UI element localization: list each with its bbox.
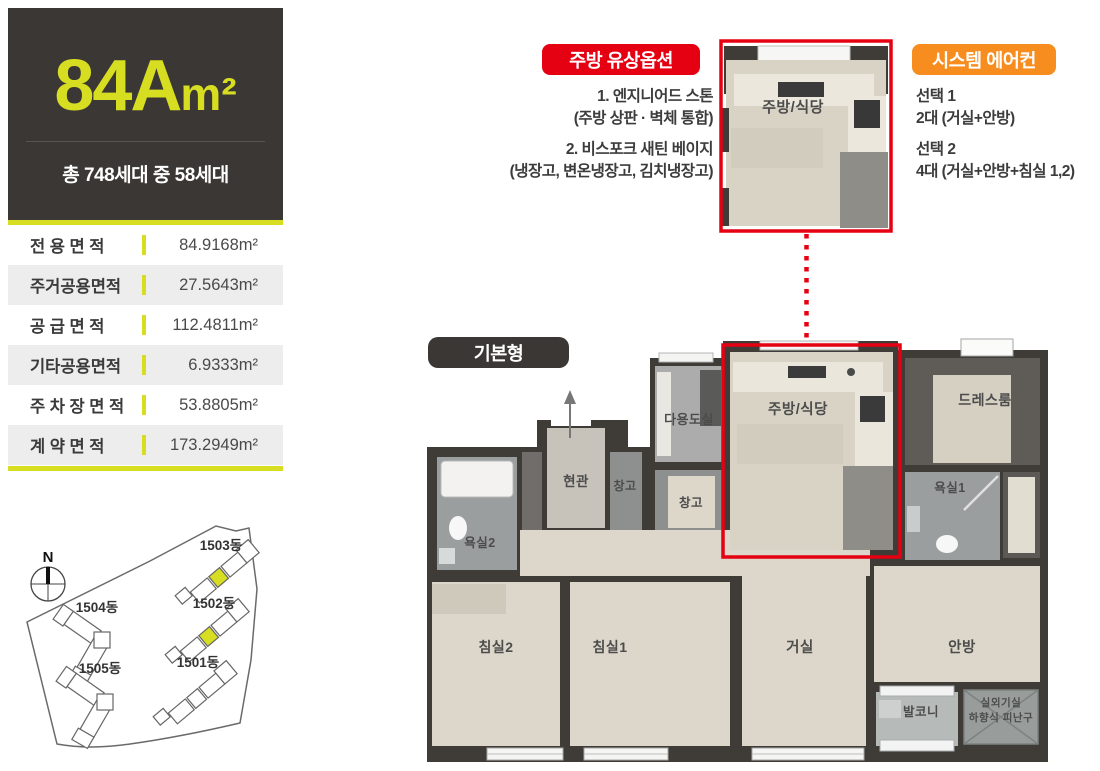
area-row-value: 112.4811m² <box>152 316 283 335</box>
label-entrance: 현관 <box>563 473 589 489</box>
room-master <box>874 566 1040 682</box>
site-boundary <box>27 526 257 747</box>
row-divider <box>142 315 146 335</box>
bathtub <box>441 461 513 497</box>
label-storage-b: 창고 <box>679 495 703 510</box>
row-divider <box>142 435 146 455</box>
inset-connector <box>796 230 818 348</box>
label-escape-hatch: 하향식 피난구 <box>969 711 1033 724</box>
inset-room-label: 주방/식당 <box>762 98 824 116</box>
island <box>737 424 843 464</box>
header-divider <box>26 141 265 142</box>
row-divider <box>142 395 146 415</box>
aircon-option-line: 선택 1 <box>916 86 1075 108</box>
area-row-label: 기타공용면적 <box>8 353 142 377</box>
washer <box>879 700 901 718</box>
inset-window <box>758 46 850 61</box>
wardrobe <box>432 584 506 614</box>
building-label: 1502동 <box>193 596 235 611</box>
area-row-label: 계 약 면 적 <box>8 433 142 457</box>
area-row: 주거공용면적 27.5643m² <box>8 265 283 305</box>
pantry <box>843 466 893 550</box>
kitchen-inset-plan: 주방/식당 <box>715 35 895 237</box>
kitchen-option-badge: 주방 유상옵션 <box>542 44 700 75</box>
area-table: 전 용 면 적 84.9168m² 주거공용면적 27.5643m² 공 급 면… <box>8 225 283 465</box>
label-living: 거실 <box>786 639 814 656</box>
kitchen-option-line: 1. 엔지니어드 스톤 <box>420 86 713 108</box>
closet <box>1003 472 1040 558</box>
row-divider <box>142 275 146 295</box>
balcony-window <box>880 740 954 751</box>
label-bath2: 욕실2 <box>464 535 495 550</box>
label-dress: 드레스룸 <box>958 392 1012 408</box>
building-label: 1505동 <box>79 661 121 676</box>
room-kitchen <box>730 352 893 550</box>
household-info: 총 748세대 중 58세대 <box>8 160 283 187</box>
room-bath2 <box>437 457 517 570</box>
aircon-option-text: 선택 1 2대 (거실+안방) 선택 2 4대 (거실+안방+침실 1,2) <box>916 86 1075 183</box>
area-row-label: 주거공용면적 <box>8 273 142 297</box>
area-row-value: 27.5643m² <box>152 276 283 295</box>
north-label: N <box>43 549 54 566</box>
area-row-value: 173.2949m² <box>152 436 283 455</box>
area-row-value: 53.8805m² <box>152 396 283 415</box>
unit-type-code: 84A <box>54 46 180 126</box>
label-storage-a: 창고 <box>613 478 636 493</box>
brochure-page: 84Am² 총 748세대 중 58세대 전 용 면 적 84.9168m² 주… <box>0 0 1100 771</box>
area-row-value: 84.9168m² <box>152 236 283 255</box>
room-bed2 <box>432 582 560 746</box>
area-row: 주 차 장 면 적 53.8805m² <box>8 385 283 425</box>
stove <box>788 366 826 378</box>
unit-type-title: 84Am² <box>8 36 283 156</box>
building-label: 1503동 <box>200 538 242 553</box>
site-plan: N 1503동 <box>12 510 280 762</box>
inset-appliance <box>854 100 880 128</box>
label-master: 안방 <box>948 638 976 656</box>
balcony-window <box>880 686 954 696</box>
label-bed1: 침실1 <box>592 639 627 655</box>
aircon-option-line: 4대 (거실+안방+침실 1,2) <box>916 161 1075 183</box>
label-utility: 다용도실 <box>664 412 714 427</box>
inset-pantry <box>840 152 888 228</box>
label-kitchen: 주방/식당 <box>768 400 828 418</box>
area-row: 전 용 면 적 84.9168m² <box>8 225 283 265</box>
building-label: 1504동 <box>76 600 118 615</box>
sink <box>439 548 455 564</box>
unit-type-unit: m² <box>180 68 236 120</box>
floor-plan: 주방/식당 다용도실 현관 창고 창고 욕실2 드레스룸 욕실1 침실2 침실1… <box>420 335 1065 767</box>
toilet <box>936 535 958 553</box>
kitchen-option-text: 1. 엔지니어드 스톤 (주방 상판 · 벽체 통합) 2. 비스포크 새틴 베… <box>420 86 713 183</box>
room-dress <box>905 358 1040 465</box>
kitchen-option-line: (냉장고, 변온냉장고, 김치냉장고) <box>420 161 713 183</box>
area-row: 계 약 면 적 173.2949m² <box>8 425 283 465</box>
inset-stove <box>778 82 824 97</box>
compass: N <box>31 549 65 601</box>
inset-island <box>731 128 823 168</box>
kitchen-option-line: (주방 상판 · 벽체 통합) <box>420 108 713 130</box>
kitchen-option-line: 2. 비스포크 새틴 베이지 <box>420 139 713 161</box>
area-row-label: 공 급 면 적 <box>8 313 142 337</box>
accent-bar-bottom <box>8 466 283 471</box>
area-row-label: 주 차 장 면 적 <box>8 393 142 417</box>
area-row-label: 전 용 면 적 <box>8 233 142 257</box>
label-outdoor-unit: 실외기실 <box>981 696 1022 709</box>
aircon-option-line: 선택 2 <box>916 139 1075 161</box>
room-bed1 <box>570 582 730 746</box>
area-row: 기타공용면적 6.9333m² <box>8 345 283 385</box>
building-label: 1501동 <box>177 655 219 670</box>
area-row-value: 6.9333m² <box>152 356 283 375</box>
aircon-option-badge: 시스템 에어컨 <box>912 44 1056 75</box>
row-divider <box>142 355 146 375</box>
aircon-option-line: 2대 (거실+안방) <box>916 108 1075 130</box>
label-balcony: 발코니 <box>903 704 939 719</box>
row-divider <box>142 235 146 255</box>
appliance <box>860 396 885 422</box>
label-bed2: 침실2 <box>478 639 513 655</box>
unit-type-header: 84Am² 총 748세대 중 58세대 <box>8 8 283 220</box>
sink <box>907 506 920 532</box>
building-1505 <box>56 666 113 748</box>
area-row: 공 급 면 적 112.4811m² <box>8 305 283 345</box>
label-bath1: 욕실1 <box>934 480 965 495</box>
